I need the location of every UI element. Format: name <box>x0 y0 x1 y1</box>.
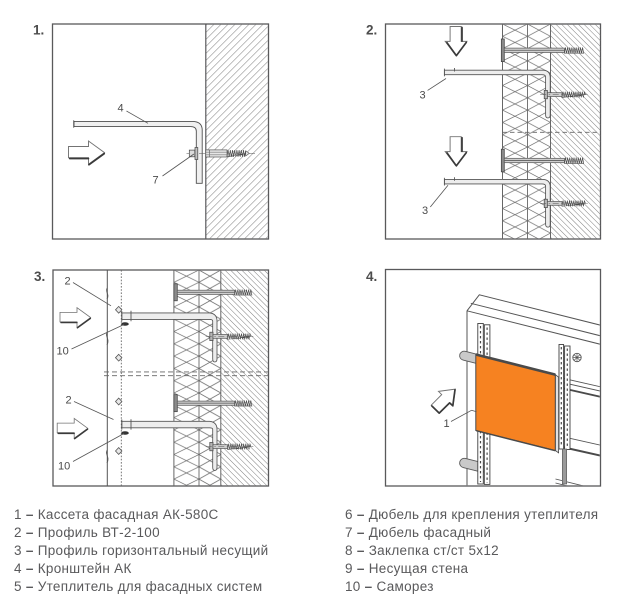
svg-text:2: 2 <box>66 395 72 407</box>
svg-text:2.: 2. <box>366 23 377 38</box>
svg-text:4.: 4. <box>366 269 377 284</box>
svg-text:7: 7 <box>153 175 159 187</box>
svg-text:3.: 3. <box>34 269 45 284</box>
svg-text:1: 1 <box>444 418 450 430</box>
svg-text:10: 10 <box>58 461 70 473</box>
svg-text:1.: 1. <box>33 23 44 38</box>
svg-text:3: 3 <box>420 90 426 102</box>
svg-text:4: 4 <box>118 103 124 115</box>
svg-text:2: 2 <box>65 275 71 287</box>
svg-text:10: 10 <box>57 346 69 358</box>
svg-text:3: 3 <box>422 205 428 217</box>
